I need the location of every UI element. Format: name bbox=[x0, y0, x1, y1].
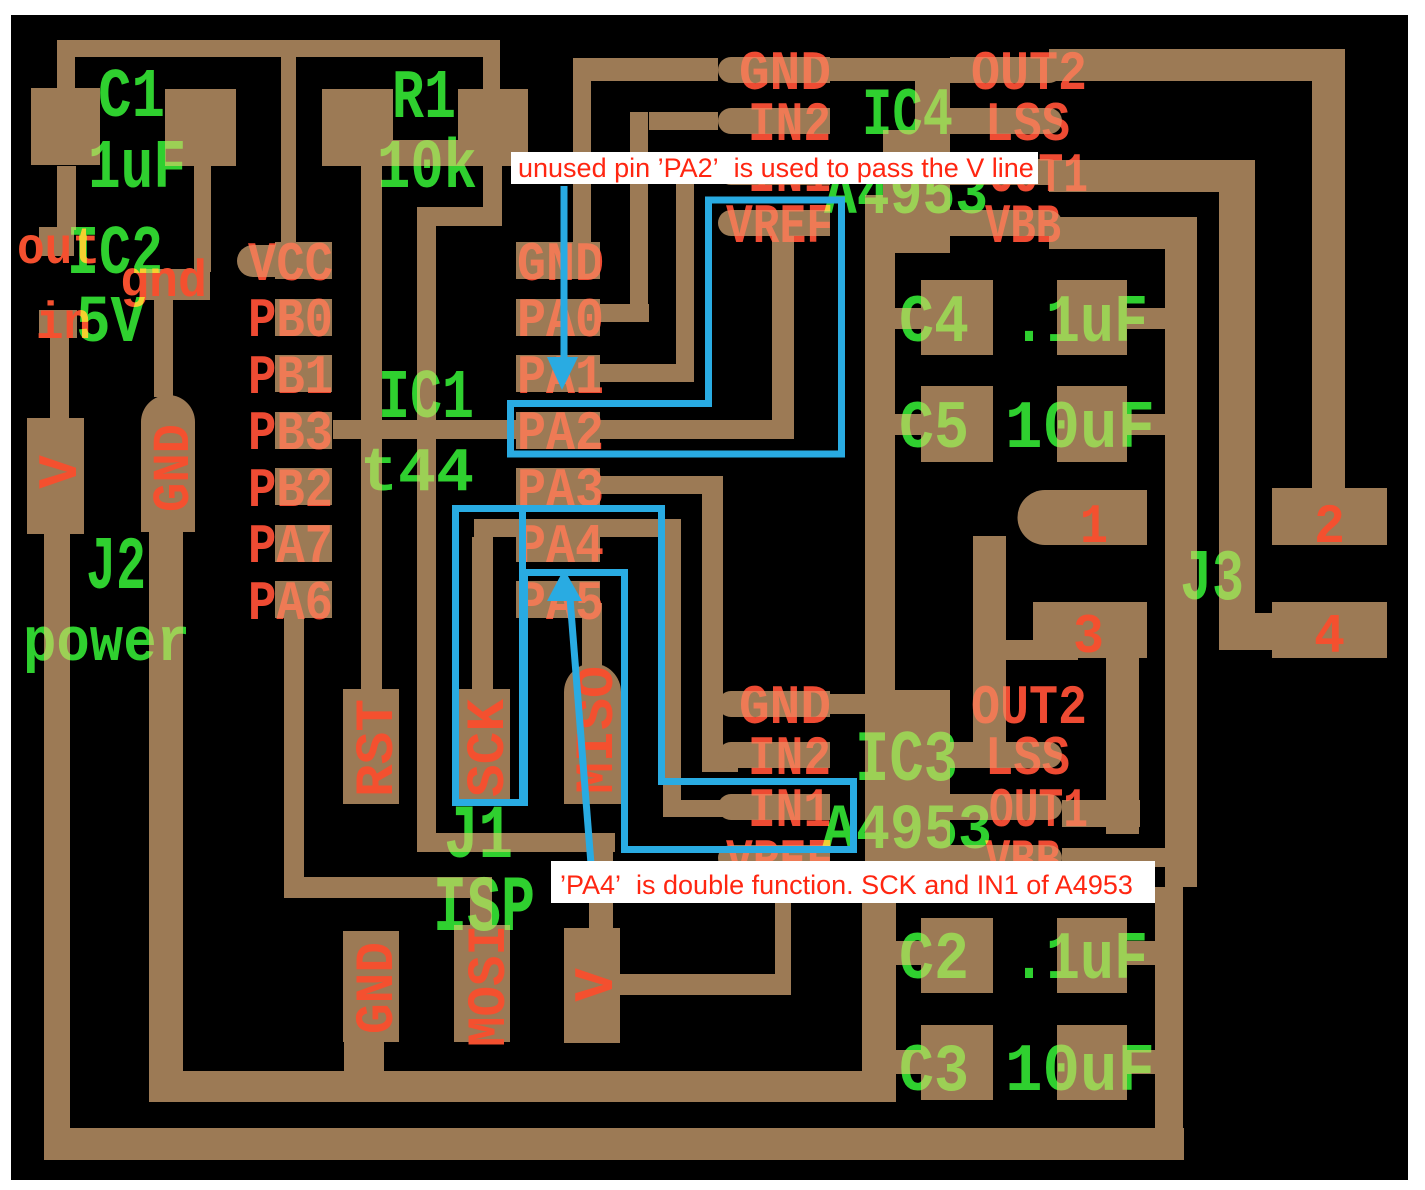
svg-text:2: 2 bbox=[1314, 495, 1345, 559]
svg-text:PB0: PB0 bbox=[248, 289, 333, 353]
svg-text:C5: C5 bbox=[899, 391, 969, 468]
svg-text:4: 4 bbox=[1314, 605, 1345, 669]
svg-text:V: V bbox=[565, 968, 629, 1002]
svg-text:10uF: 10uF bbox=[1005, 391, 1155, 468]
svg-text:1: 1 bbox=[1080, 495, 1108, 559]
svg-text:.1uF: .1uF bbox=[1012, 285, 1148, 362]
svg-text:IC3: IC3 bbox=[855, 720, 958, 802]
svg-text:’PA4’ is double function. SCK: ’PA4’ is double function. SCK and IN1 of… bbox=[560, 870, 1133, 900]
svg-text:IC4: IC4 bbox=[862, 78, 953, 155]
svg-text:5V: 5V bbox=[76, 286, 146, 362]
svg-text:VCC: VCC bbox=[248, 233, 333, 297]
svg-text:VBB: VBB bbox=[985, 195, 1061, 259]
svg-text:C2: C2 bbox=[899, 922, 969, 999]
svg-text:ISP: ISP bbox=[433, 864, 535, 955]
svg-text:PB2: PB2 bbox=[248, 459, 333, 523]
svg-text:R1: R1 bbox=[392, 60, 456, 139]
svg-text:3: 3 bbox=[1073, 605, 1104, 669]
svg-text:t44: t44 bbox=[360, 438, 474, 509]
svg-text:power: power bbox=[23, 608, 190, 679]
svg-text:J3: J3 bbox=[1180, 539, 1244, 621]
svg-text:GND: GND bbox=[348, 942, 409, 1034]
svg-text:A4953: A4953 bbox=[822, 796, 992, 868]
svg-text:GND: GND bbox=[145, 424, 204, 512]
svg-text:C3: C3 bbox=[899, 1034, 969, 1111]
svg-text:PA7: PA7 bbox=[248, 515, 333, 579]
svg-text:VREF: VREF bbox=[726, 195, 833, 259]
svg-text:SCK: SCK bbox=[459, 698, 520, 797]
svg-text:IC2: IC2 bbox=[67, 216, 163, 295]
svg-text:PB3: PB3 bbox=[248, 402, 333, 466]
svg-text:C4: C4 bbox=[899, 285, 969, 362]
svg-text:unused pin ’PA2’ is used to p: unused pin ’PA2’ is used to pass the V l… bbox=[518, 153, 1034, 183]
svg-text:10k: 10k bbox=[377, 130, 477, 209]
svg-text:J2: J2 bbox=[86, 526, 146, 611]
svg-text:RST: RST bbox=[348, 699, 409, 797]
svg-text:PA3: PA3 bbox=[517, 459, 604, 523]
svg-text:PA6: PA6 bbox=[248, 572, 333, 636]
svg-text:V: V bbox=[29, 455, 93, 489]
svg-text:1uF: 1uF bbox=[88, 130, 186, 209]
svg-text:IC1: IC1 bbox=[378, 360, 474, 439]
svg-text:PB1: PB1 bbox=[248, 346, 333, 410]
svg-text:10uF: 10uF bbox=[1005, 1034, 1155, 1111]
svg-text:.1uF: .1uF bbox=[1012, 922, 1148, 999]
svg-text:C1: C1 bbox=[98, 59, 165, 138]
